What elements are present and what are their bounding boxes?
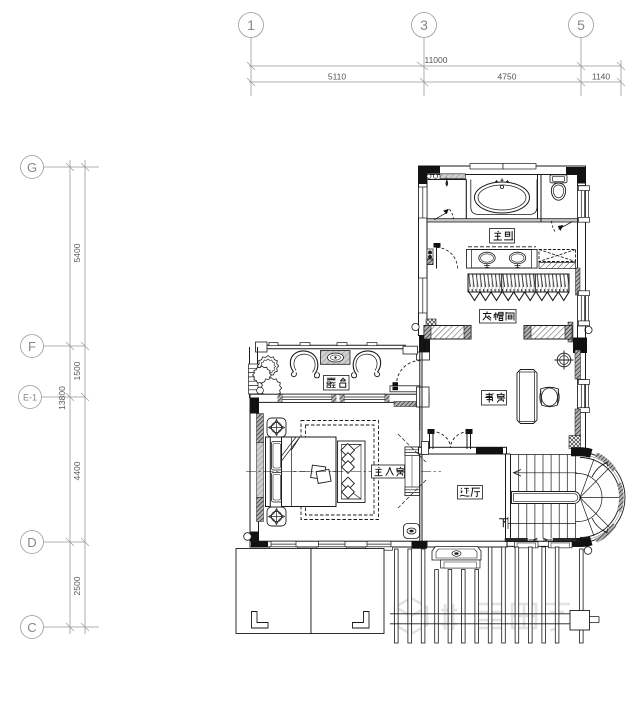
svg-text:G: G: [27, 160, 37, 175]
svg-text:C: C: [27, 620, 36, 635]
svg-text:11000: 11000: [424, 55, 447, 65]
svg-text:F: F: [28, 339, 36, 354]
svg-text:2500: 2500: [72, 576, 82, 595]
svg-text:4750: 4750: [498, 72, 517, 82]
svg-text:3: 3: [420, 17, 428, 33]
svg-text:13800: 13800: [57, 386, 67, 410]
svg-text:1140: 1140: [592, 72, 611, 82]
svg-text:E-1: E-1: [23, 393, 37, 403]
svg-text:4400: 4400: [72, 461, 82, 480]
svg-text:5110: 5110: [328, 72, 347, 82]
svg-text:5: 5: [577, 17, 585, 33]
svg-text:5400: 5400: [72, 243, 82, 262]
svg-text:1500: 1500: [72, 361, 82, 380]
svg-text:1: 1: [247, 17, 255, 33]
svg-text:D: D: [27, 535, 36, 550]
